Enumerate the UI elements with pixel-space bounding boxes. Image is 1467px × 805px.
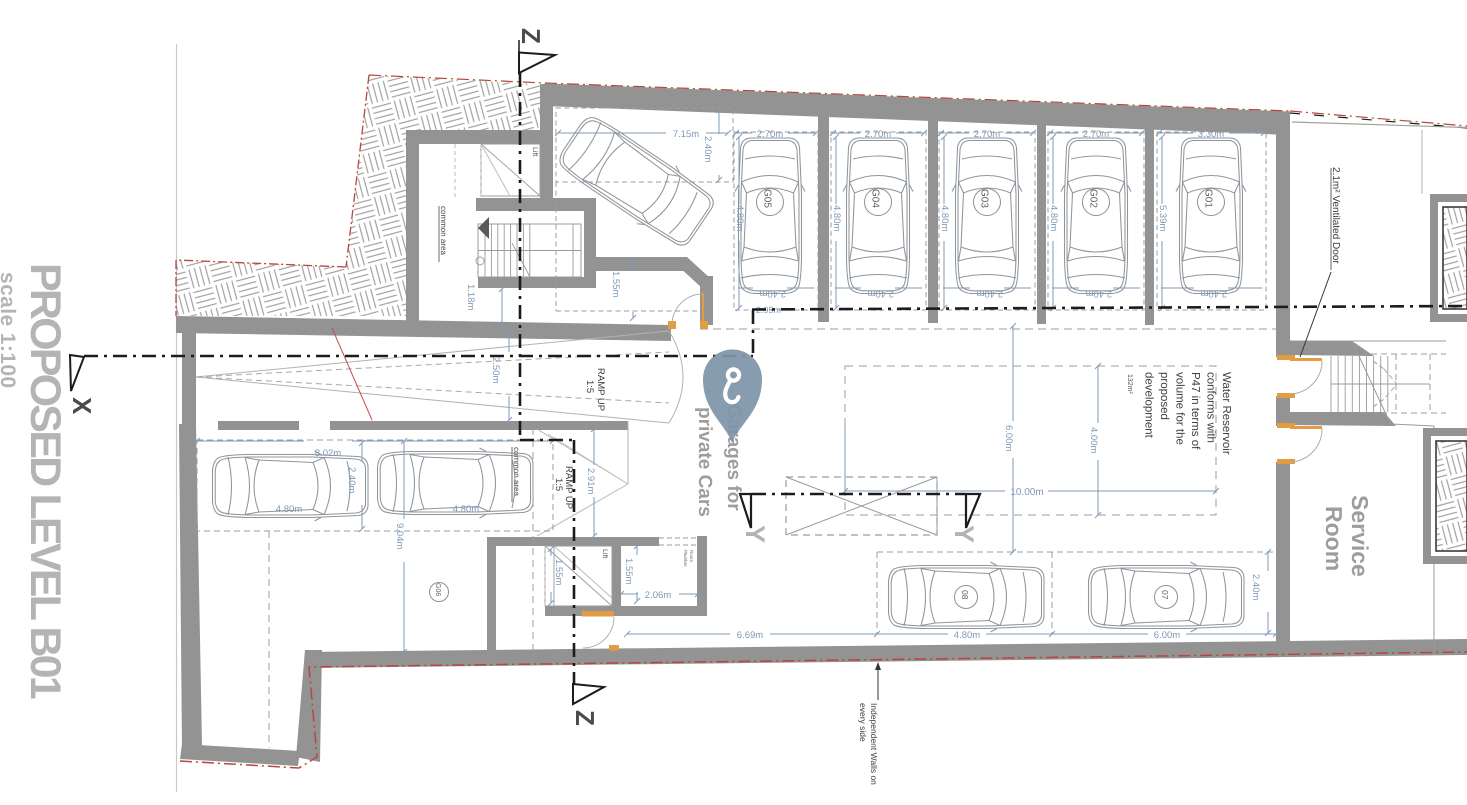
svg-text:1.18m: 1.18m [465,284,476,310]
svg-text:2.40m: 2.40m [1250,574,1261,600]
svg-text:X: X [67,397,97,415]
svg-text:4.80m: 4.80m [831,205,842,231]
svg-text:4.80m: 4.80m [453,504,479,515]
svg-text:2.70m: 2.70m [974,129,1000,140]
svg-text:4.80m: 4.80m [276,504,302,515]
svg-text:common area: common area [512,447,521,496]
svg-text:2.70m: 2.70m [1083,129,1109,140]
svg-text:6.00m: 6.00m [1154,630,1180,641]
svg-text:2.70m: 2.70m [865,129,891,140]
svg-text:2.91m: 2.91m [585,468,596,494]
svg-text:Room: Room [689,550,694,562]
svg-text:Y: Y [949,525,979,543]
svg-text:132m²: 132m² [1126,374,1133,395]
svg-text:Service: Service [1347,495,1373,577]
svg-text:every side: every side [858,703,868,742]
svg-text:10.00m: 10.00m [1010,487,1043,498]
svg-text:4.80m: 4.80m [939,205,950,231]
svg-text:2.40m: 2.40m [702,136,713,162]
svg-text:1.55m: 1.55m [553,559,564,585]
svg-text:2.50m: 2.50m [490,357,501,383]
svg-text:G02: G02 [1088,189,1099,208]
svg-text:2.40m: 2.40m [977,288,1003,299]
svg-text:07: 07 [1160,590,1170,600]
svg-text:2.40m: 2.40m [868,288,894,299]
svg-text:4.80m: 4.80m [734,205,745,231]
svg-text:2.06m: 2.06m [645,590,671,601]
svg-text:2.40m: 2.40m [1201,288,1227,299]
svg-text:G05: G05 [762,189,773,208]
svg-text:6.00m: 6.00m [1003,425,1014,451]
svg-text:2.70m: 2.70m [757,129,783,140]
svg-text:scale 1:100: scale 1:100 [0,272,19,389]
svg-text:Plumber: Plumber [683,550,688,567]
svg-text:9.04m: 9.04m [394,523,405,549]
svg-text:RAMP UP: RAMP UP [595,368,606,411]
svg-text:08: 08 [960,590,970,600]
svg-text:4.80m: 4.80m [1048,205,1059,231]
svg-text:7.15m: 7.15m [673,129,699,140]
svg-text:4.00m: 4.00m [1088,427,1099,453]
svg-text:1.55m: 1.55m [610,271,621,297]
svg-text:2.40m: 2.40m [760,288,786,299]
svg-text:G03: G03 [979,189,990,208]
svg-text:PROPOSED LEVEL B01: PROPOSED LEVEL B01 [21,263,69,699]
svg-text:2.1m² Ventilated Door: 2.1m² Ventilated Door [1330,167,1341,264]
svg-text:G06: G06 [434,583,441,596]
svg-text:6.69m: 6.69m [737,630,763,641]
svg-text:Room: Room [1321,506,1347,571]
svg-text:2.40m: 2.40m [346,467,357,493]
svg-text:8.02m: 8.02m [315,448,341,459]
svg-text:Y: Y [740,525,770,543]
svg-text:2.40m: 2.40m [1086,288,1112,299]
svg-text:1:5: 1:5 [553,478,564,491]
svg-text:5.39m: 5.39m [1157,205,1168,231]
svg-text:common area: common area [439,206,448,255]
svg-text:private Cars: private Cars [694,407,715,517]
svg-text:G04: G04 [870,189,881,208]
svg-text:Lift: Lift [601,549,609,558]
svg-text:Lift: Lift [531,147,539,156]
svg-text:3.30m: 3.30m [1198,129,1224,140]
svg-text:1:5: 1:5 [584,380,595,393]
svg-text:1.55m: 1.55m [623,558,634,584]
svg-text:Z: Z [570,710,600,726]
svg-text:G01: G01 [1203,189,1214,208]
svg-text:Independent Walls on: Independent Walls on [869,703,879,785]
svg-text:4.80m: 4.80m [954,630,980,641]
svg-text:Z: Z [516,28,546,44]
